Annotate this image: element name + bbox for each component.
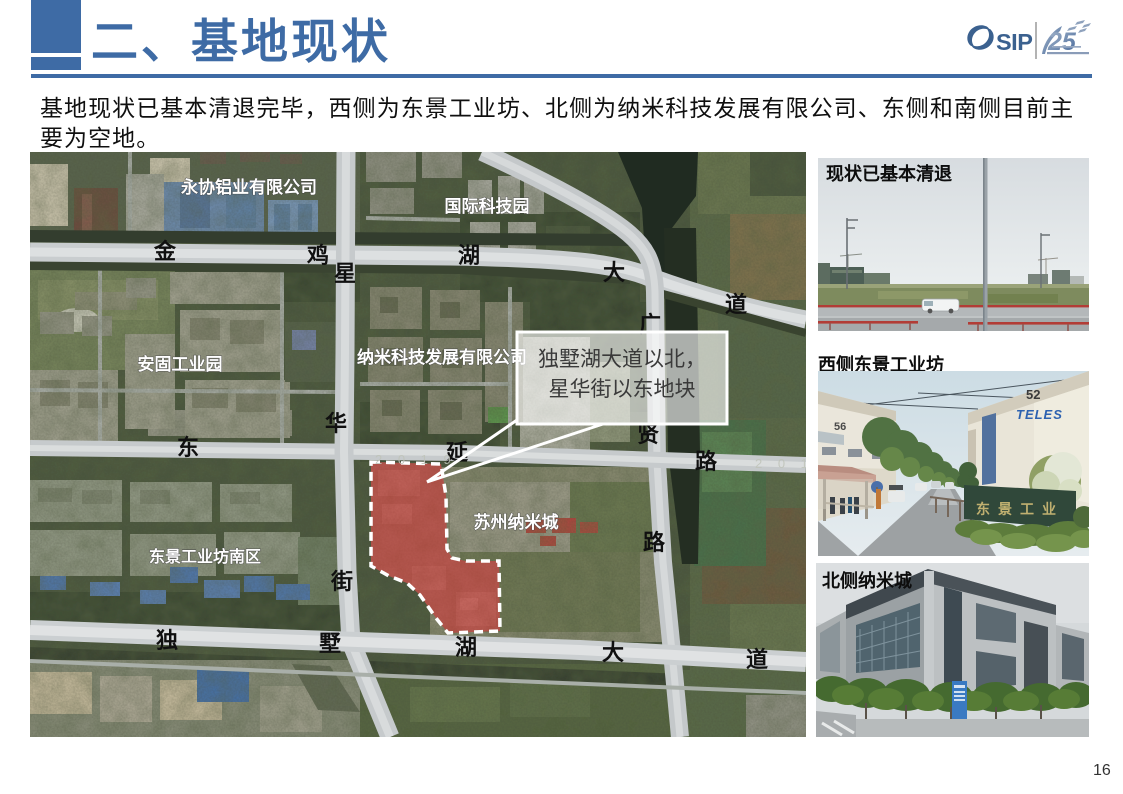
svg-text:TELES: TELES bbox=[1016, 407, 1063, 422]
svg-text:永协铝业有限公司: 永协铝业有限公司 bbox=[180, 177, 317, 197]
svg-text:墅: 墅 bbox=[319, 631, 341, 656]
svg-text:鸡: 鸡 bbox=[306, 243, 329, 268]
svg-text:道: 道 bbox=[725, 292, 747, 317]
svg-text:星: 星 bbox=[334, 261, 356, 286]
svg-text:东: 东 bbox=[177, 435, 199, 460]
svg-text:华: 华 bbox=[325, 411, 347, 436]
svg-text:2 0 1: 2 0 1 bbox=[755, 456, 806, 471]
svg-text:2 0 1 9: 2 0 1 9 bbox=[375, 452, 457, 467]
svg-text:道: 道 bbox=[746, 647, 768, 672]
svg-text:路: 路 bbox=[643, 530, 666, 555]
svg-text:56: 56 bbox=[834, 421, 846, 433]
svg-text:25: 25 bbox=[1047, 28, 1077, 56]
svg-text:大: 大 bbox=[603, 260, 625, 285]
svg-text:独: 独 bbox=[156, 628, 178, 653]
svg-text:金: 金 bbox=[153, 239, 177, 264]
svg-text:东景工业: 东景工业 bbox=[976, 501, 1064, 517]
svg-text:路: 路 bbox=[695, 449, 718, 474]
svg-text:大: 大 bbox=[602, 640, 624, 665]
svg-text:湖: 湖 bbox=[458, 243, 480, 268]
svg-text:安固工业园: 安固工业园 bbox=[138, 354, 223, 374]
svg-text:纳米科技发展有限公司: 纳米科技发展有限公司 bbox=[357, 347, 527, 367]
svg-text:湖: 湖 bbox=[455, 635, 477, 660]
svg-text:国际科技园: 国际科技园 bbox=[445, 196, 530, 216]
svg-text:街: 街 bbox=[330, 569, 353, 594]
svg-text:苏州纳米城: 苏州纳米城 bbox=[474, 512, 559, 532]
svg-text:52: 52 bbox=[1026, 387, 1040, 402]
svg-text:独墅湖大道以北，: 独墅湖大道以北， bbox=[538, 348, 706, 371]
svg-text:东景工业坊南区: 东景工业坊南区 bbox=[149, 547, 261, 566]
svg-text:SIP: SIP bbox=[996, 29, 1032, 55]
svg-text:星华街以东地块: 星华街以东地块 bbox=[549, 378, 696, 401]
svg-text:贤: 贤 bbox=[637, 422, 659, 447]
